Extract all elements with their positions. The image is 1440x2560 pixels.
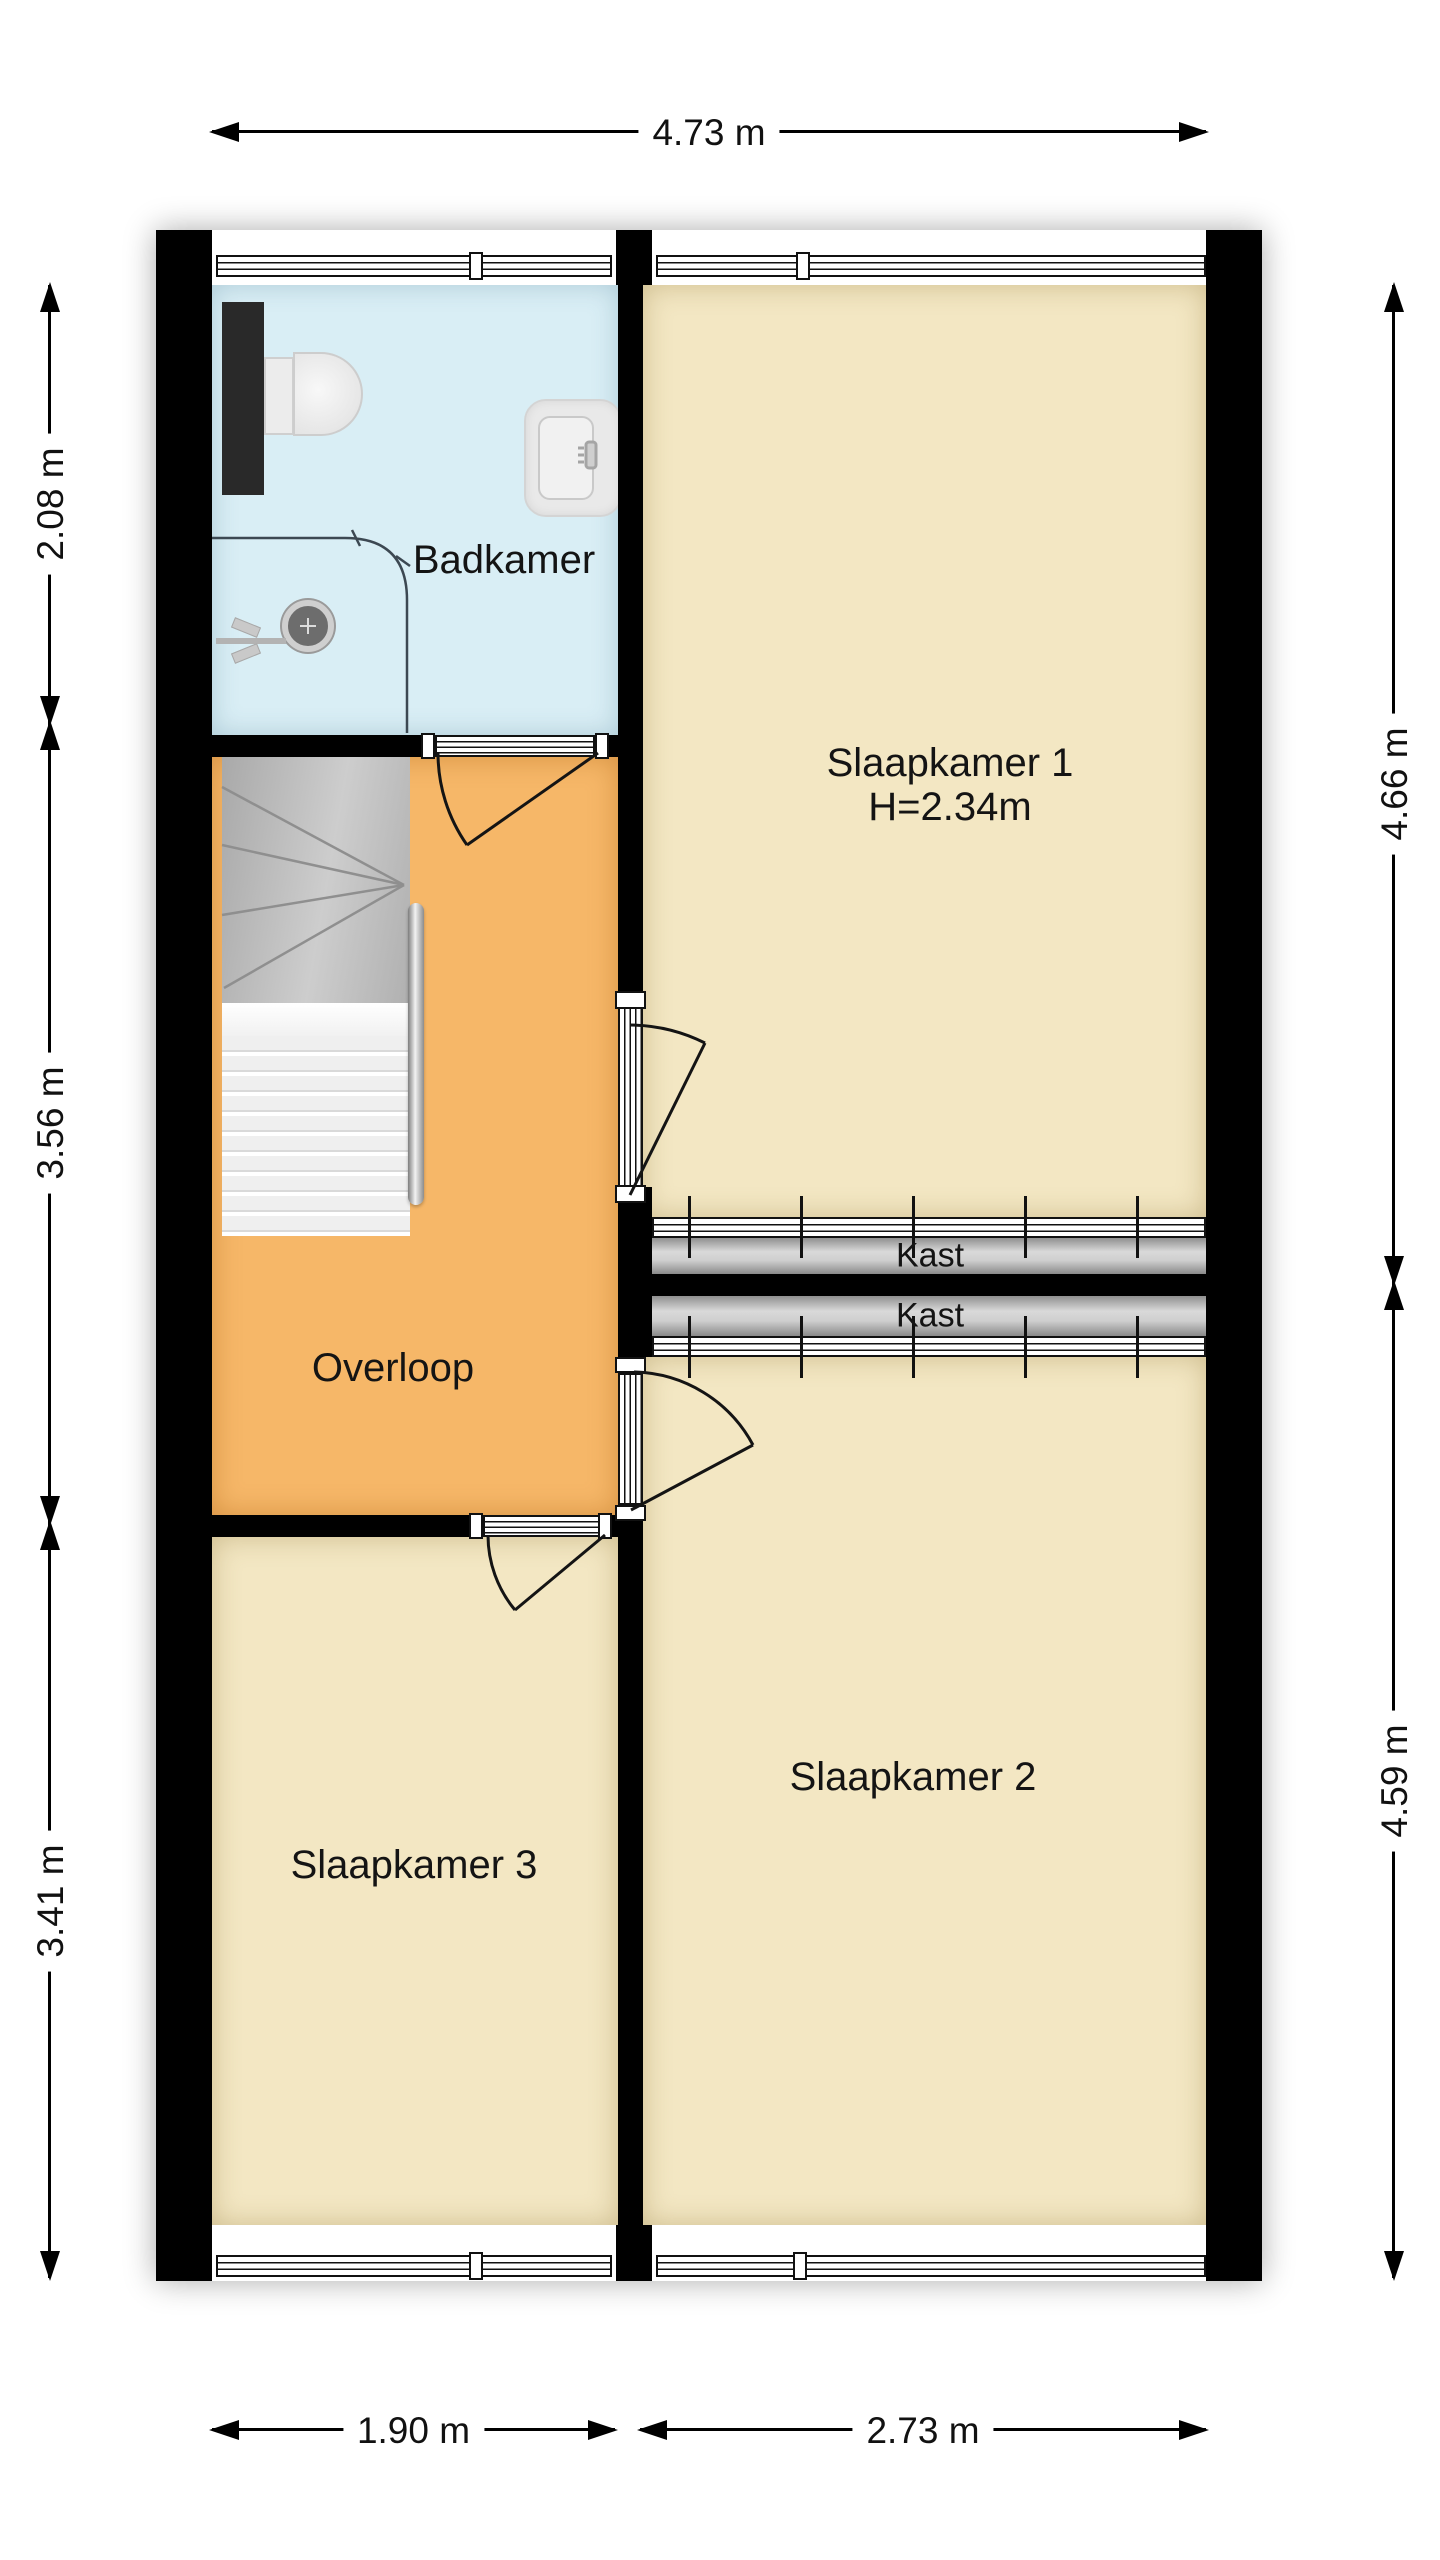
dim-left-slaapkamer3: 3.41 m <box>48 1523 51 2278</box>
stairs-winder-lines <box>222 787 404 988</box>
arrowhead-right-icon <box>1179 122 1209 142</box>
dim-label-left-slaapkamer3: 3.41 m <box>28 1830 74 1971</box>
dim-label-left-overloop: 3.56 m <box>28 1052 74 1193</box>
shower-drain-icon <box>578 442 596 468</box>
arrowhead-up-icon <box>1384 282 1404 312</box>
arrowhead-right-icon <box>588 2420 618 2440</box>
room-label-overloop: Overloop <box>312 1346 474 1390</box>
door-swing-badkamer <box>438 753 598 845</box>
dim-right-slaapkamer2: 4.59 m <box>1392 1283 1395 2278</box>
dim-label-top: 4.73 m <box>638 110 779 156</box>
arrowhead-down-icon <box>1384 2251 1404 2281</box>
shower-area-line <box>212 530 410 733</box>
arrowhead-left-icon <box>209 2420 239 2440</box>
dim-bottom-slaapkamer3: 1.90 m <box>212 2428 615 2431</box>
arrowhead-down-icon <box>40 2251 60 2281</box>
dim-label-left-badkamer: 2.08 m <box>28 433 74 574</box>
door-swing-slaapkamer1 <box>630 1025 705 1195</box>
door-swing-slaapkamer3 <box>488 1535 605 1610</box>
room-label-slaapkamer2: Slaapkamer 2 <box>790 1755 1037 1799</box>
dim-label-right-slaapkamer2: 4.59 m <box>1372 1710 1418 1851</box>
floorplan-canvas: Badkamer Slaapkamer 1 H=2.34m Kast Kast … <box>0 0 1440 2560</box>
room-label-kast-boven: Kast <box>896 1237 964 1276</box>
dim-label-right-slaapkamer1: 4.66 m <box>1372 713 1418 854</box>
plan-symbols-overlay <box>0 0 1440 2560</box>
room-label-slaapkamer1-height: H=2.34m <box>868 785 1031 829</box>
arrowhead-left-icon <box>209 122 239 142</box>
dim-right-slaapkamer1: 4.66 m <box>1392 285 1395 1283</box>
room-label-kast-onder: Kast <box>896 1297 964 1336</box>
arrowhead-up-icon <box>40 282 60 312</box>
arrowhead-right-icon <box>1179 2420 1209 2440</box>
dim-label-bottom-slaapkamer3: 1.90 m <box>343 2408 484 2454</box>
arrowhead-up-icon <box>40 1520 60 1550</box>
dim-left-overloop: 3.56 m <box>48 723 51 1523</box>
room-label-badkamer: Badkamer <box>413 538 595 582</box>
arrowhead-up-icon <box>1384 1280 1404 1310</box>
arrowhead-left-icon <box>637 2420 667 2440</box>
room-label-slaapkamer3: Slaapkamer 3 <box>291 1843 538 1887</box>
dim-top-width: 4.73 m <box>212 130 1206 133</box>
dim-label-bottom-slaapkamer2: 2.73 m <box>852 2408 993 2454</box>
door-swing-slaapkamer2 <box>631 1372 753 1510</box>
room-label-slaapkamer1: Slaapkamer 1 <box>827 741 1074 785</box>
arrowhead-up-icon <box>40 720 60 750</box>
sink-center-mark <box>300 618 316 634</box>
dim-left-badkamer: 2.08 m <box>48 285 51 723</box>
dim-bottom-slaapkamer2: 2.73 m <box>640 2428 1206 2431</box>
